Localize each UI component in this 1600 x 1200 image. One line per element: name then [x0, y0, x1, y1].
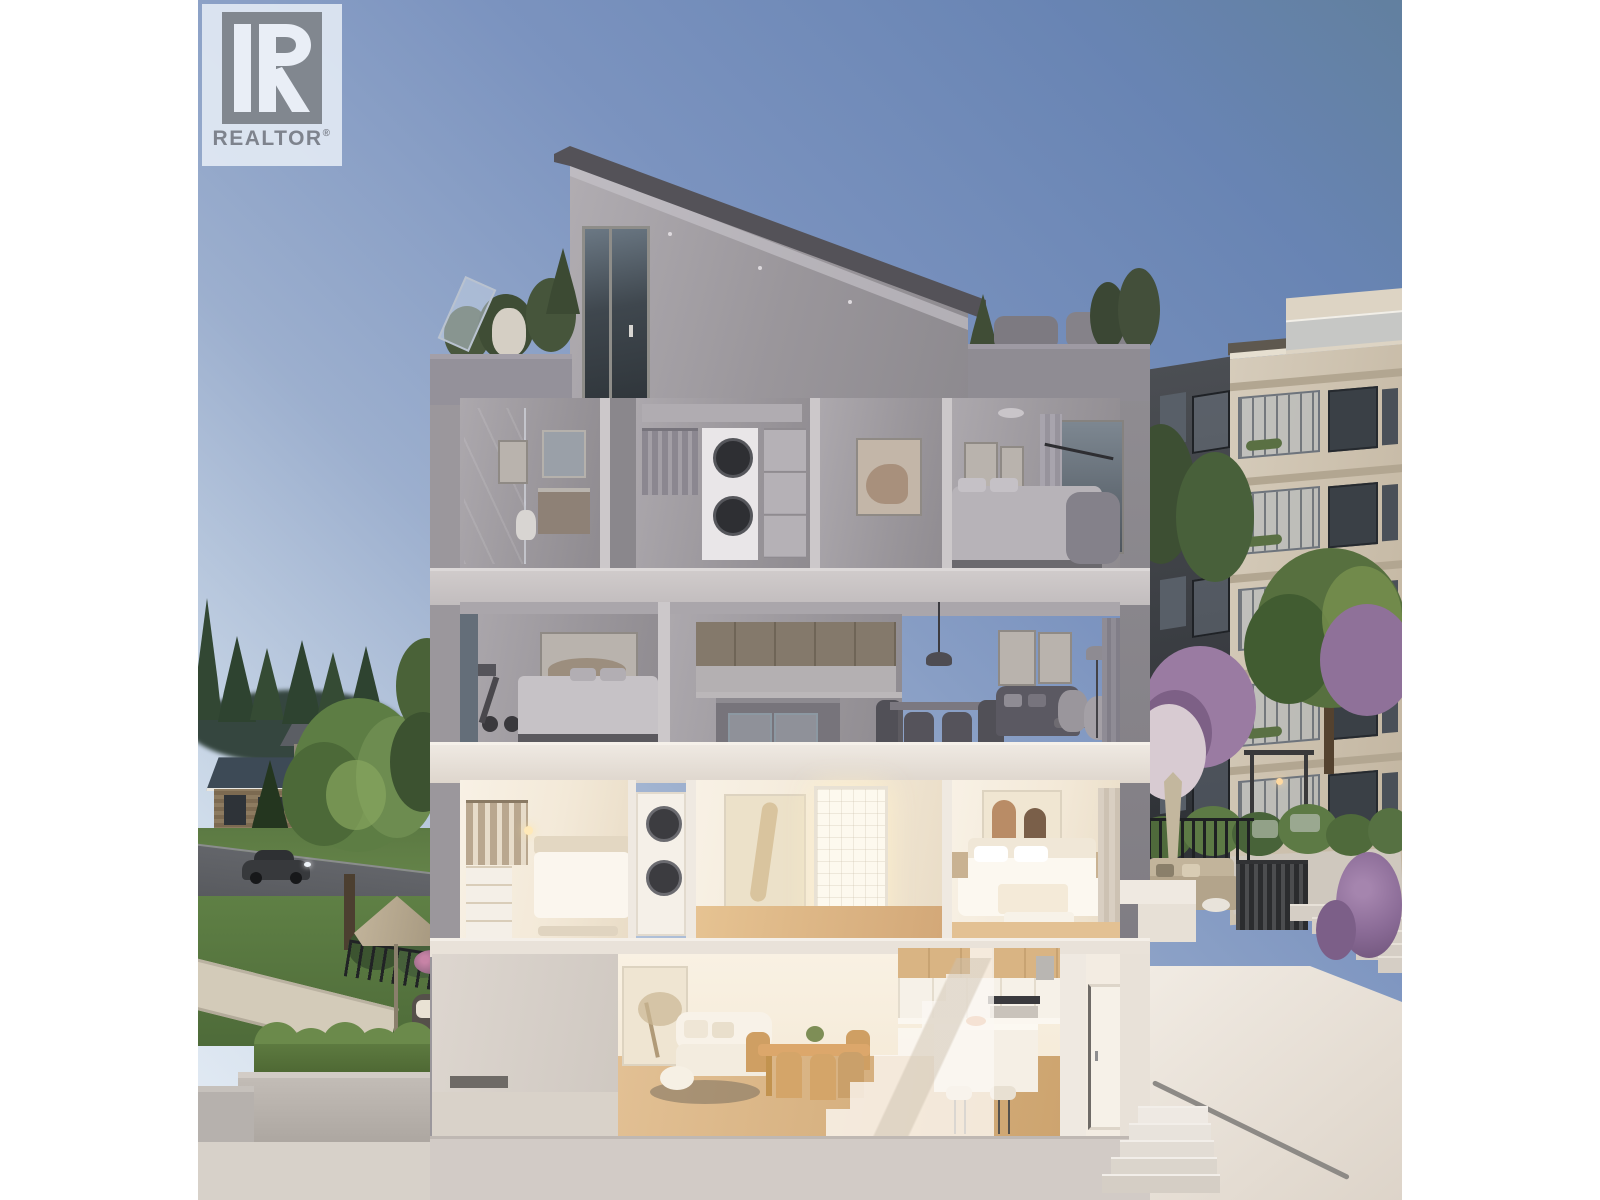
evergreen-tree [282, 640, 322, 724]
upper-cabinets-wood [696, 622, 896, 666]
car-headlight [304, 862, 311, 867]
car-wheel [290, 872, 302, 884]
realtor-logo: REALTOR® [202, 4, 342, 166]
nightstand [952, 852, 968, 878]
roof-downlight [668, 232, 672, 236]
throw-blanket [998, 884, 1068, 914]
vanity-cabinet [538, 488, 590, 534]
realtor-wordmark: REALTOR® [213, 128, 332, 149]
landing-doorway [610, 398, 636, 568]
cut-slab-step [1138, 904, 1196, 942]
mid-bedroom [460, 614, 658, 742]
roof-downlight [848, 300, 852, 304]
sofa-pillow [1028, 694, 1046, 707]
warm-transfer-slab [430, 742, 1150, 783]
toilet [516, 510, 536, 540]
window-sliver [460, 614, 478, 742]
gap-tree [1176, 452, 1254, 582]
cut-wall [658, 602, 670, 742]
cut-slab-step [1120, 880, 1196, 904]
laundry-stack [636, 792, 686, 936]
vanity-mirror [542, 430, 586, 478]
hanging-clothes [466, 800, 528, 865]
floor-lamp-pole [1096, 656, 1098, 738]
hanging-clothes [642, 428, 698, 495]
clerestory-window [582, 226, 650, 408]
bathroom [460, 398, 600, 568]
pillow [958, 478, 986, 492]
house-window [224, 795, 246, 825]
armchair [1066, 492, 1120, 564]
neighbor-dark-window [1160, 576, 1186, 630]
pergola-lamp [1276, 778, 1283, 785]
coffee-table-round [1202, 898, 1230, 912]
lower-hallway [696, 780, 942, 942]
pendant-shade [926, 652, 952, 666]
primary-bedroom [952, 780, 1120, 942]
dining-chair-wood [776, 1052, 802, 1098]
render-photo: REALTOR® [198, 0, 1402, 1200]
dining-chair-wood [810, 1054, 836, 1100]
bike-console [478, 664, 496, 676]
cut-wall [942, 780, 952, 942]
fur-stool [660, 1066, 694, 1090]
front-pavement [198, 1142, 440, 1200]
closet-shelf-tower [466, 866, 512, 938]
page-canvas: REALTOR® [0, 0, 1600, 1200]
door-handle [629, 325, 633, 337]
washer-dryer-stack [702, 428, 758, 560]
doormat [450, 1076, 508, 1088]
evergreen-tree [218, 636, 256, 722]
door-handle [1095, 1051, 1098, 1061]
walk-in-closet [636, 398, 810, 568]
sofa-pillow [712, 1022, 734, 1038]
car-wheel [250, 872, 262, 884]
registered-mark: ® [323, 128, 332, 139]
living-art [998, 630, 1036, 686]
green-chair [1252, 820, 1278, 838]
hallway-large-art [724, 794, 806, 910]
curtain [1098, 788, 1120, 938]
dryer-door [646, 860, 682, 896]
living-art [1038, 632, 1072, 684]
pendant-cord [938, 602, 940, 654]
art-shape [866, 464, 908, 504]
guest-bed [534, 852, 630, 918]
neighbor-window [1328, 482, 1378, 548]
exterior-tile [432, 1092, 618, 1136]
table-leg [766, 1056, 772, 1096]
realtor-r-monogram-icon [222, 12, 322, 124]
closet-shelves [764, 428, 806, 558]
neighbor-dark-balcony [1192, 390, 1230, 454]
table-lamp-glow [524, 826, 533, 835]
floor-slab [430, 568, 1150, 605]
planter-wall [238, 1072, 440, 1150]
ceiling-light [998, 408, 1024, 418]
shower-glass [464, 408, 526, 564]
washer-door [646, 806, 682, 842]
pillow [974, 846, 1008, 862]
mid-kitchen [670, 614, 902, 742]
pillow [600, 668, 626, 681]
hall-wood-floor [696, 906, 942, 942]
amenity-step [1378, 956, 1402, 973]
terrace-tree-canopy [1118, 268, 1160, 352]
tree-canopy-highlight [326, 760, 386, 830]
bed [518, 676, 658, 742]
table-leg [898, 710, 903, 744]
upper-bedroom [952, 398, 1120, 568]
dryer-door [713, 496, 753, 536]
backsplash [696, 666, 896, 692]
cut-wall [686, 780, 696, 942]
art-streak [749, 801, 779, 902]
bathroom-art [498, 440, 528, 484]
green-chair [1290, 814, 1320, 832]
window-mullion [609, 229, 612, 405]
evergreen-tree [250, 648, 284, 720]
sofa-pillow [684, 1020, 708, 1038]
closet-bedroom [460, 780, 630, 942]
egg-chair [492, 308, 526, 356]
neighbor-dark-balcony [1192, 574, 1230, 638]
ground-pillar [1060, 954, 1086, 1136]
pillow [1014, 846, 1048, 862]
pillow [570, 668, 596, 681]
sofa-pillow [1156, 864, 1174, 877]
neighbor-window [1382, 388, 1398, 445]
stair-step [1102, 1174, 1220, 1193]
right-parapet [968, 344, 1150, 401]
tree-trunk [1324, 700, 1334, 774]
sofa-pillow [1182, 864, 1200, 877]
cut-wall [628, 780, 636, 942]
coffee-machine [1036, 956, 1054, 980]
upper-hallway [820, 398, 950, 568]
neighbor-window [1382, 484, 1398, 541]
stair-stringer-shadow [850, 958, 1000, 1138]
sofa-pillow [1004, 694, 1022, 707]
curtain [1102, 618, 1120, 742]
neighbor-window [1328, 386, 1378, 452]
far-left-evergreen [198, 598, 222, 720]
pillow [990, 478, 1018, 492]
roof-downlight [758, 266, 762, 270]
washer-door [713, 438, 753, 478]
closet-shelf-top [642, 404, 802, 422]
rug [538, 926, 618, 936]
table-plant [806, 1026, 824, 1042]
foundation [430, 1136, 1150, 1200]
purple-hedge [1316, 900, 1356, 960]
